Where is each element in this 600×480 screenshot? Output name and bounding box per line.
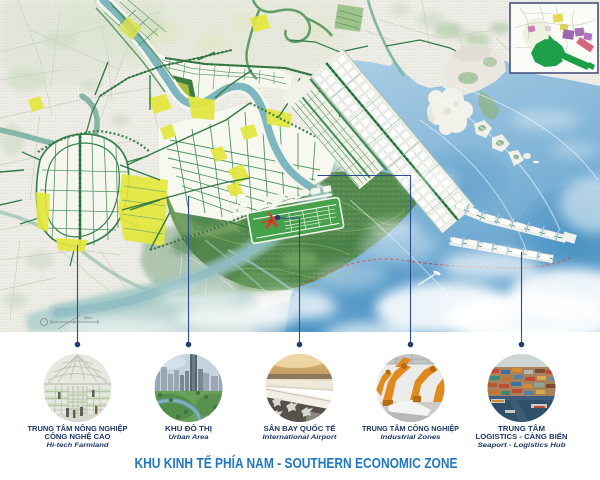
svg-text:Seaport - Logistics Hub: Seaport - Logistics Hub [478, 442, 566, 449]
svg-text:Urban Area: Urban Area [169, 434, 209, 441]
svg-text:2km: 2km [84, 315, 92, 320]
svg-text:International Airport: International Airport [263, 434, 338, 441]
svg-text:KHU KINH TẾ PHÍA NAM - SOUTHER: KHU KINH TẾ PHÍA NAM - SOUTHERN ECONOMIC… [135, 455, 458, 472]
svg-text:Industrial Zones: Industrial Zones [381, 434, 441, 441]
svg-text:TRUNG TÂM NÔNG NGHIỆP: TRUNG TÂM NÔNG NGHIỆP [28, 424, 128, 433]
svg-text:Hi-tech Farmland: Hi-tech Farmland [47, 442, 110, 449]
svg-text:KHU ĐÔ THỊ: KHU ĐÔ THỊ [165, 424, 212, 433]
svg-text:TRUNG TÂM: TRUNG TÂM [498, 424, 545, 433]
svg-text:CÔNG NGHỆ CAO: CÔNG NGHỆ CAO [45, 432, 112, 441]
svg-text:TRUNG TÂM CÔNG NGHIỆP: TRUNG TÂM CÔNG NGHIỆP [362, 424, 459, 433]
